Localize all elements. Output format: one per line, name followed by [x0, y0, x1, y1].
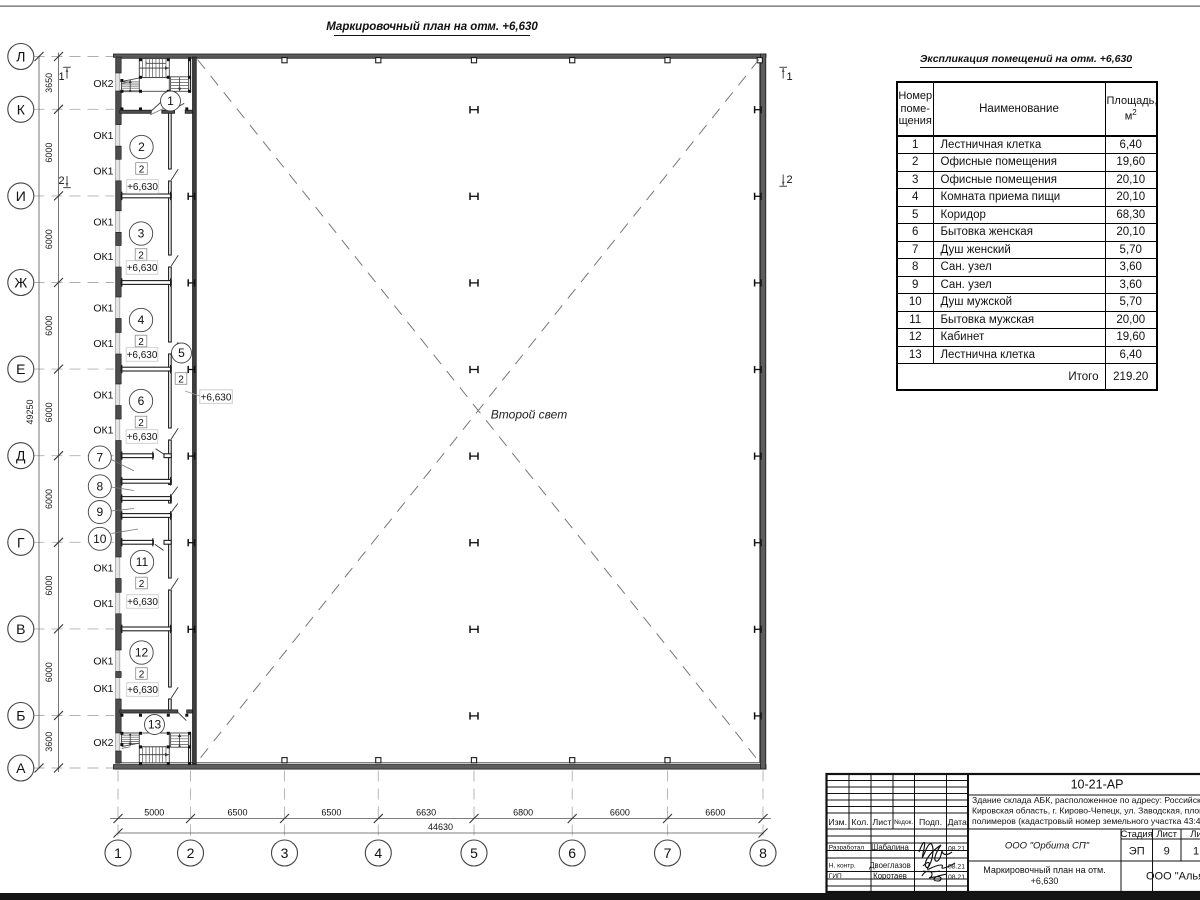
svg-text:ООО "Орбита СП": ООО "Орбита СП" [1005, 841, 1090, 852]
svg-text:10-21-АР: 10-21-АР [1071, 778, 1124, 792]
svg-text:Кол.: Кол. [851, 817, 868, 827]
svg-text:Изм.: Изм. [828, 817, 847, 827]
svg-text:ГИП: ГИП [829, 873, 842, 880]
svg-text:Дата: Дата [948, 817, 967, 827]
svg-text:Двоеглазов: Двоеглазов [869, 861, 910, 870]
svg-text:Кировская область, г. Кирово-Ч: Кировская область, г. Кирово-Чепецк, ул.… [972, 806, 1200, 816]
svg-text:08.21: 08.21 [948, 874, 965, 881]
svg-text:Разработал: Разработал [829, 844, 865, 852]
svg-text:Лист: Лист [873, 817, 892, 827]
svg-text:9: 9 [1164, 846, 1170, 858]
svg-text:Шабалина: Шабалина [871, 843, 909, 852]
svg-text:08.21: 08.21 [948, 863, 965, 870]
svg-text:ЭП: ЭП [1129, 846, 1145, 858]
svg-text:Н. контр.: Н. контр. [829, 863, 856, 870]
svg-text:Ли: Ли [1190, 829, 1200, 840]
svg-text:Подп.: Подп. [919, 817, 942, 827]
svg-text:Стадия: Стадия [1121, 829, 1153, 840]
svg-text:08.21: 08.21 [948, 845, 965, 852]
svg-text:Коротаев: Коротаев [873, 872, 907, 881]
svg-text:полимеров (кадастровый номер з: полимеров (кадастровый номер земельного … [972, 816, 1200, 826]
svg-text:+6,630: +6,630 [1031, 876, 1059, 886]
svg-text:Маркировочный план на отм.: Маркировочный план на отм. [983, 865, 1105, 875]
svg-text:1: 1 [1193, 846, 1199, 858]
svg-text:Здание склада АБК, расположенн: Здание склада АБК, расположенное по адре… [972, 795, 1200, 805]
svg-text:ООО "Альянс: ООО "Альянс [1146, 871, 1200, 883]
svg-text:№док.: №док. [894, 819, 913, 826]
svg-text:Лист: Лист [1156, 829, 1177, 840]
